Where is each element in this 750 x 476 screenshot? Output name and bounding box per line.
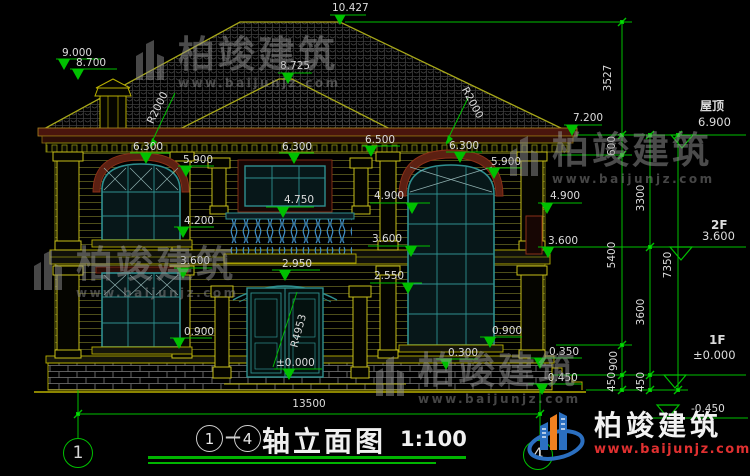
dim-label-3527: 3527 bbox=[603, 65, 614, 92]
site-logo: 柏竣建筑 www.baijunjz.com bbox=[526, 404, 750, 464]
level-label-1f-value: ±0.000 bbox=[693, 350, 736, 362]
level-label-0300: 0.300 bbox=[448, 348, 478, 359]
axis-number-1: 1 bbox=[73, 443, 84, 463]
level-label-1f-tag: 1F bbox=[709, 334, 726, 346]
level-label-chimney-cap: 8.700 bbox=[76, 58, 106, 69]
window-left-2f bbox=[92, 153, 192, 247]
title-axis-bubble-start: 1 bbox=[196, 425, 223, 452]
level-label-zero-door: ±0.000 bbox=[276, 358, 315, 369]
axis-bubble-1: 1 bbox=[63, 438, 93, 468]
level-label-0350: 0.350 bbox=[549, 347, 579, 358]
dim-label-450-a: 450 bbox=[607, 372, 618, 392]
dim-label-900: 900 bbox=[609, 351, 620, 371]
level-label-4750: 4.750 bbox=[284, 195, 314, 206]
level-label-eave-right: 7.200 bbox=[573, 113, 603, 124]
level-label-3600-right: 3.600 bbox=[548, 236, 578, 247]
title-axis-bubble-end: 4 bbox=[234, 425, 261, 452]
level-label-6300-left: 6.300 bbox=[133, 142, 163, 153]
level-label-3600-center: 3.600 bbox=[372, 234, 402, 245]
logo-brand-text: 柏竣建筑 bbox=[594, 412, 750, 440]
level-label-6300-center: 6.300 bbox=[282, 142, 312, 153]
level-label-2950: 2.950 bbox=[282, 259, 312, 270]
logo-url-text: www.baijunjz.com bbox=[594, 442, 750, 457]
chimney bbox=[95, 79, 131, 132]
dim-label-600: 600 bbox=[607, 136, 618, 156]
level-label-4200: 4.200 bbox=[184, 216, 214, 227]
cad-elevation-canvas: 10.427 8.725 9.000 8.700 7.200 6.500 6.3… bbox=[0, 0, 750, 476]
dim-label-total-width: 13500 bbox=[292, 399, 325, 410]
balcony bbox=[224, 213, 356, 263]
level-label-0900-left: 0.900 bbox=[184, 327, 214, 338]
level-label-roof-tag: 屋顶 bbox=[700, 100, 724, 112]
level-label-front-ridge: 8.725 bbox=[280, 61, 310, 72]
title-axis-end: 4 bbox=[243, 430, 253, 448]
drawing-title: 1 — 4 轴立面图 1:100 bbox=[148, 420, 478, 470]
level-label-apex: 10.427 bbox=[332, 3, 369, 14]
level-label-roof-value: 6.900 bbox=[698, 117, 731, 129]
dim-label-450-b: 450 bbox=[636, 372, 647, 392]
level-label-2f-value: 3.600 bbox=[702, 231, 735, 243]
level-label-neg450-wall: -0.450 bbox=[544, 373, 578, 384]
level-label-3600-left: 3.600 bbox=[180, 256, 210, 267]
level-label-2550: 2.550 bbox=[374, 271, 404, 282]
dim-label-5400: 5400 bbox=[607, 242, 618, 269]
level-label-6300-right: 6.300 bbox=[449, 141, 479, 152]
title-axis-start: 1 bbox=[205, 430, 215, 448]
logo-building-icon bbox=[526, 404, 590, 464]
dim-label-3300: 3300 bbox=[636, 185, 647, 212]
title-scale: 1:100 bbox=[400, 427, 467, 451]
title-underline-thick bbox=[148, 456, 466, 459]
level-label-5900-right: 5.900 bbox=[491, 157, 521, 168]
window-right-tall bbox=[399, 150, 503, 352]
level-label-4900-right: 4.900 bbox=[550, 191, 580, 202]
title-text: 轴立面图 bbox=[262, 420, 386, 460]
level-label-center-eave: 6.500 bbox=[365, 135, 395, 146]
level-label-4900-center: 4.900 bbox=[374, 191, 404, 202]
title-underline-thin bbox=[148, 462, 436, 464]
level-label-5900-left: 5.900 bbox=[183, 155, 213, 166]
dim-label-7350: 7350 bbox=[663, 252, 674, 279]
level-label-0900-right: 0.900 bbox=[492, 326, 522, 337]
dim-label-3600: 3600 bbox=[636, 299, 647, 326]
